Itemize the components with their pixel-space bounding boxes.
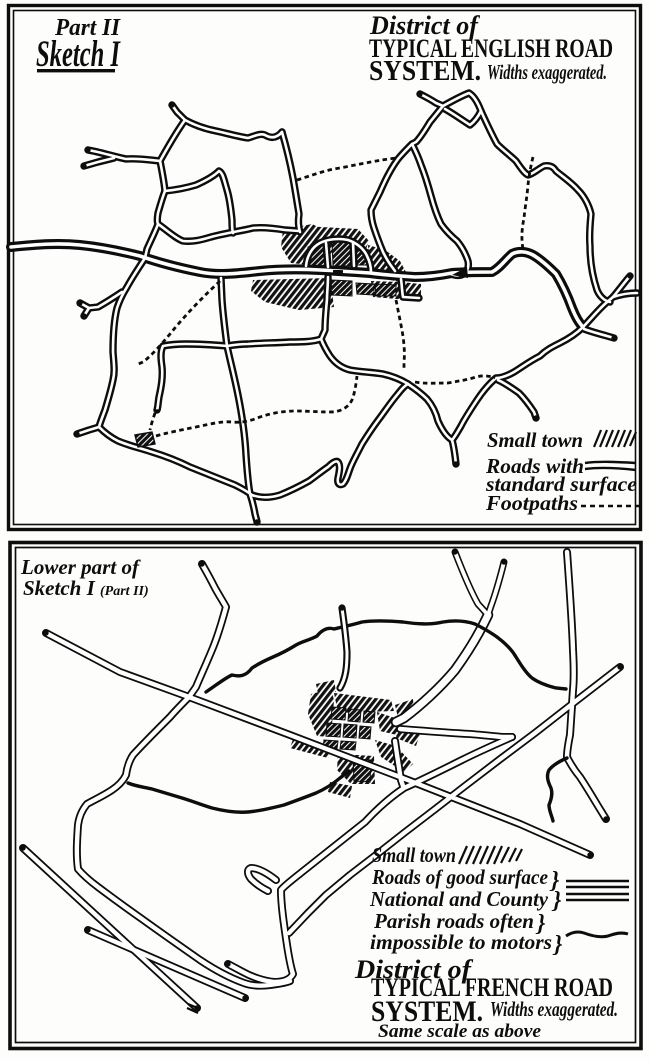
svg-text:National and County: National and County: [369, 887, 549, 911]
svg-text:Small town: Small town: [372, 843, 456, 867]
svg-text:}: }: [535, 911, 546, 937]
svg-text:Small town: Small town: [487, 428, 583, 452]
svg-text:}: }: [552, 932, 563, 958]
svg-text:Roads of good surface: Roads of good surface: [371, 865, 548, 889]
svg-text:SYSTEM.: SYSTEM.: [369, 55, 481, 87]
svg-text:Widths exaggerated.: Widths exaggerated.: [487, 60, 607, 84]
svg-text:}: }: [551, 888, 562, 914]
svg-text:impossible to motors: impossible to motors: [370, 930, 552, 954]
svg-text:Widths exaggerated.: Widths exaggerated.: [490, 997, 618, 1021]
svg-text:Same scale as above: Same scale as above: [378, 1021, 542, 1042]
svg-text:Footpaths: Footpaths: [485, 491, 578, 515]
svg-text:Sketch I: Sketch I: [36, 34, 121, 75]
